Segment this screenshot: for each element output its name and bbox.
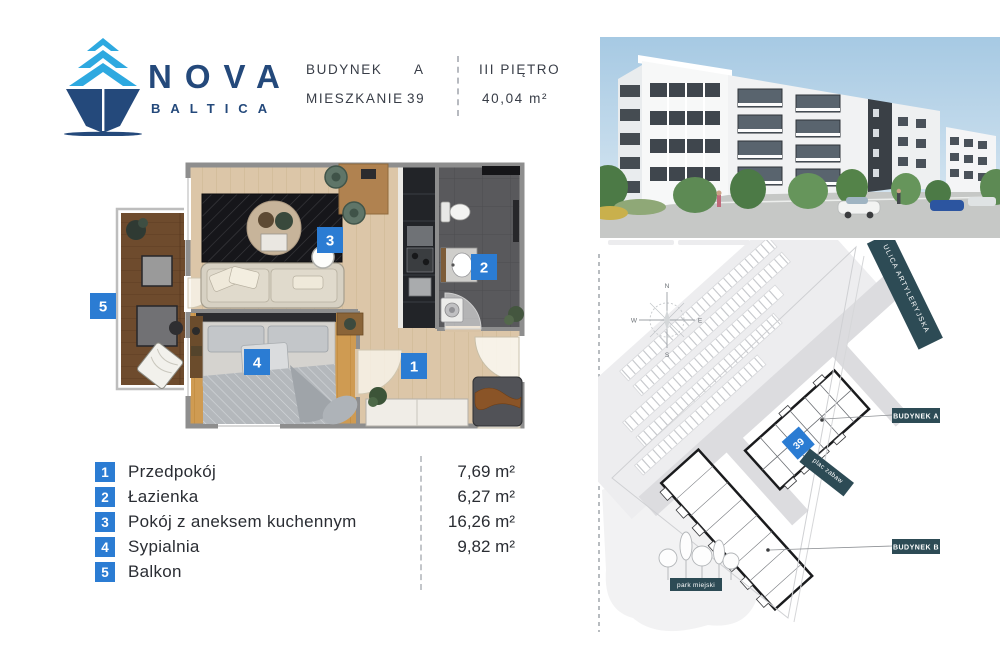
compass-s: S <box>665 352 670 359</box>
legend-badge-5: 5 <box>95 562 115 582</box>
ship-icon <box>62 36 144 136</box>
legend-badge-3: 3 <box>95 512 115 532</box>
legend-area-value: 9,82 m² <box>425 537 515 557</box>
legend-badge-2: 2 <box>95 487 115 507</box>
compass-w: W <box>631 318 638 325</box>
floor-plan: 1 2 3 4 5 <box>90 150 532 442</box>
building-label: BUDYNEK <box>306 62 382 77</box>
apartment-label: MIESZKANIE <box>306 91 404 106</box>
floor-label: III PIĘTRO <box>479 62 560 77</box>
legend-room-name: Sypialnia <box>128 537 200 557</box>
svg-text:3: 3 <box>326 233 334 250</box>
compass-e: E <box>698 318 703 325</box>
building-b-label: BUDYNEK B <box>766 539 940 554</box>
building-value: A <box>414 62 425 77</box>
svg-text:2: 2 <box>480 260 488 277</box>
kitchen-cabinets <box>398 167 437 328</box>
legend-room-name: Balkon <box>128 562 182 582</box>
legend-divider <box>420 456 422 590</box>
legend-area-value: 7,69 m² <box>425 462 515 482</box>
legend-room-name: Łazienka <box>128 487 198 507</box>
room-marker-1: 1 <box>401 353 427 379</box>
site-plan: 39 <box>598 240 1000 640</box>
svg-text:park miejski: park miejski <box>677 582 715 589</box>
brand-subname: BALTICA <box>151 101 277 116</box>
legend-room-name: Pokój z aneksem kuchennym <box>128 512 357 532</box>
room-marker-2: 2 <box>471 254 497 280</box>
playground-label: plac zabaw <box>799 448 854 496</box>
legend-area-value: 16,26 m² <box>425 512 515 532</box>
header-divider <box>457 56 459 116</box>
room-legend: 1 Przedpokój 2 Łazienka 3 Pokój z anekse… <box>95 459 517 591</box>
legend-row: 1 Przedpokój <box>95 461 216 483</box>
balcony-room <box>117 209 188 390</box>
legend-row: 4 Sypialnia <box>95 536 200 558</box>
legend-row: 2 Łazienka <box>95 486 198 508</box>
svg-text:BUDYNEK B: BUDYNEK B <box>893 545 939 552</box>
room-marker-5: 5 <box>90 293 116 319</box>
brochure-page: NOVA BALTICA BUDYNEK A MIESZKANIE 39 III… <box>0 0 1000 667</box>
svg-text:4: 4 <box>253 355 262 372</box>
brand-name: NOVA <box>148 58 293 96</box>
svg-text:1: 1 <box>410 359 418 376</box>
compass-n: N <box>665 283 670 290</box>
legend-badge-4: 4 <box>95 537 115 557</box>
legend-row: 3 Pokój z aneksem kuchennym <box>95 511 357 533</box>
room-marker-3: 3 <box>317 227 343 253</box>
north-parking-edge <box>608 240 750 245</box>
svg-text:BUDYNEK A: BUDYNEK A <box>893 414 939 421</box>
legend-area-value: 6,27 m² <box>425 487 515 507</box>
legend-badge-1: 1 <box>95 462 115 482</box>
legend-row: 5 Balkon <box>95 561 182 583</box>
legend-room-name: Przedpokój <box>128 462 216 482</box>
svg-text:5: 5 <box>99 299 107 316</box>
apartment-value: 39 <box>407 91 425 106</box>
room-marker-4: 4 <box>244 349 270 375</box>
building-photo <box>600 37 1000 238</box>
total-area-value: 40,04 m² <box>482 91 548 106</box>
